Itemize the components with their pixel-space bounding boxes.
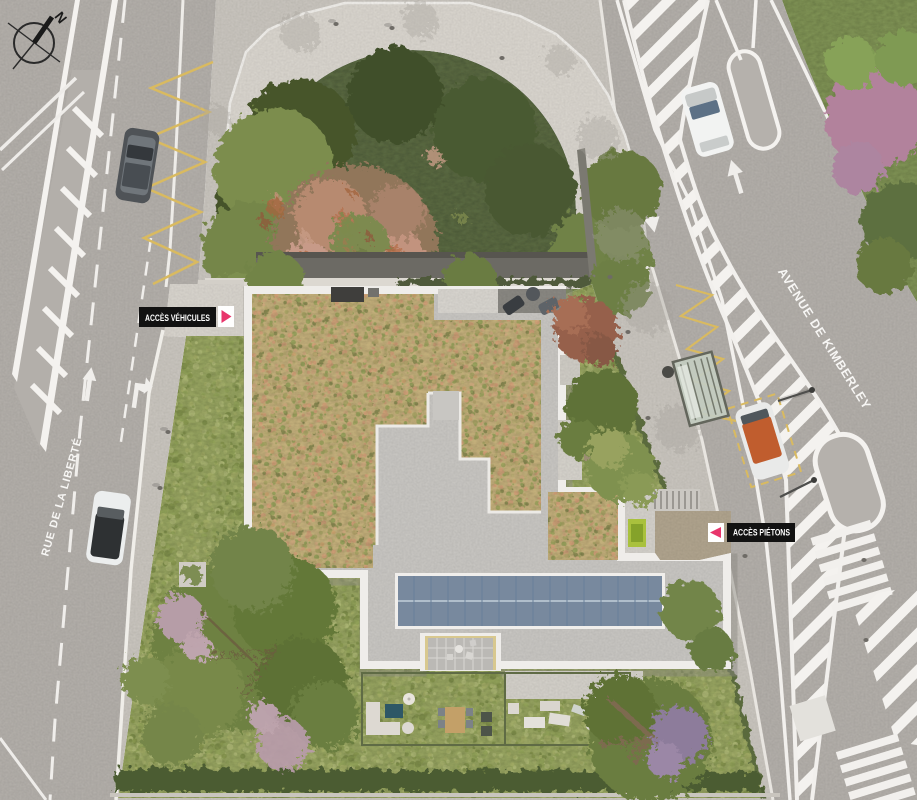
svg-text:ACCÈS VÉHICULES: ACCÈS VÉHICULES [145, 313, 210, 324]
svg-text:ACCÈS PIÉTONS: ACCÈS PIÉTONS [733, 528, 790, 539]
